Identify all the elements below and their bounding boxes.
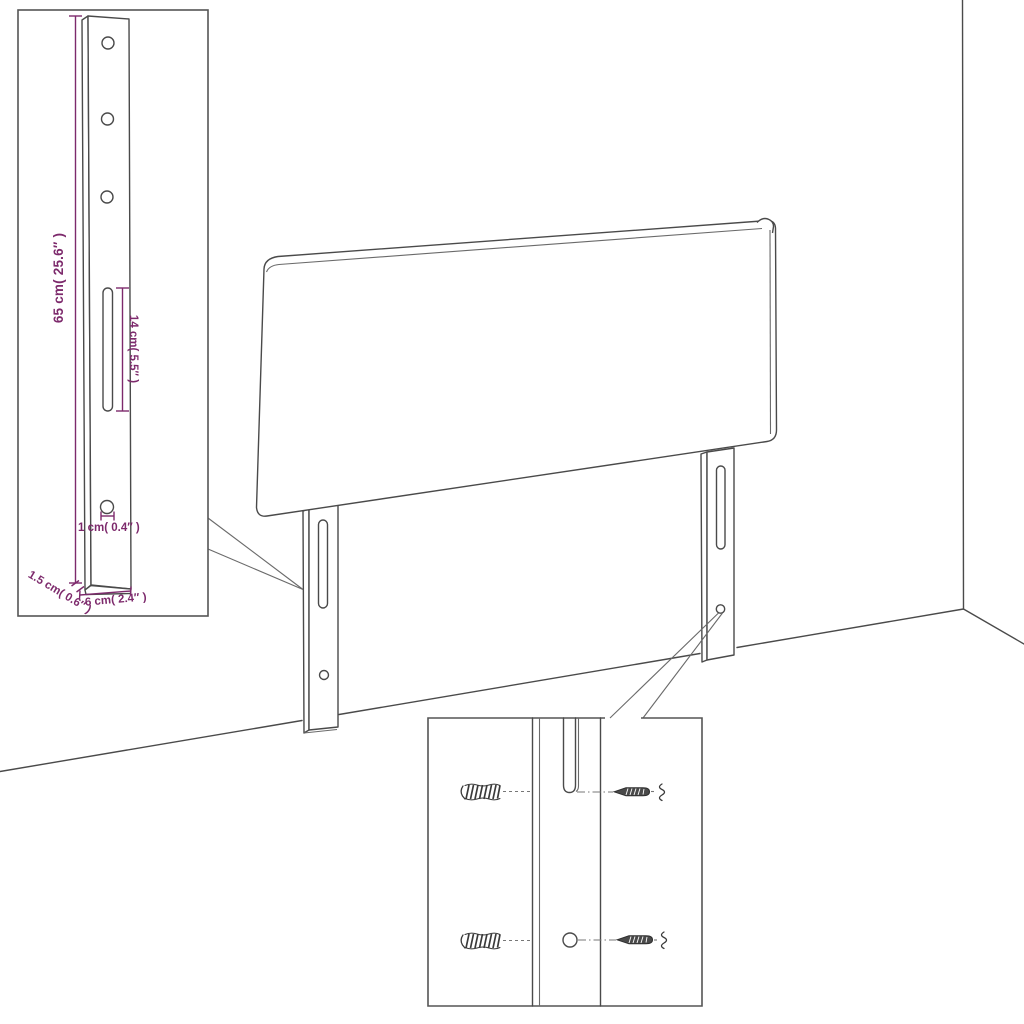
headboard-right-inner-edge: [770, 230, 771, 434]
strip-slot: [564, 718, 576, 793]
screw-icon: [614, 788, 650, 796]
detail-box-hardware: [428, 718, 702, 1006]
headboard-leg-right: [701, 448, 734, 662]
dim-thickness-label: 1.5 cm( 0.6″ ): [26, 569, 93, 616]
headboard-panel-outline: [257, 221, 777, 517]
floor-line-right: [964, 609, 1024, 644]
callout-lines-left-detail: [208, 518, 303, 590]
spring-squiggle-icon: [662, 932, 667, 949]
headboard-assembly-diagram: 65 cm( 25.6″ ) 14 cm( 5.5″ ) 1 cm( 0.4″ …: [0, 0, 1024, 1024]
alignment-dashes: [503, 792, 660, 941]
bracket-hole-1: [102, 37, 114, 49]
leg-left-slot: [319, 520, 328, 608]
floor-line-left: [0, 609, 964, 772]
diagram-canvas: 65 cm( 25.6″ ) 14 cm( 5.5″ ) 1 cm( 0.4″ …: [0, 0, 1024, 1024]
leg-left-hole: [320, 671, 329, 680]
leg-left-side-face: [303, 509, 309, 733]
strip-slot-inner-edge: [576, 718, 579, 792]
bracket-bottom-hole: [101, 501, 114, 514]
detail-box-leg-dimensions: 65 cm( 25.6″ ) 14 cm( 5.5″ ) 1 cm( 0.4″ …: [18, 10, 208, 616]
bracket-hole-3: [101, 191, 113, 203]
dim-height-label: 65 cm( 25.6″ ): [51, 233, 66, 323]
dim-hole-label: 1 cm( 0.4″ ): [78, 522, 140, 534]
leg-right-slot: [717, 466, 726, 549]
detail-box-hardware-border: [428, 718, 702, 1006]
mounting-strip: [533, 718, 601, 1006]
spring-squiggle-icon: [660, 784, 665, 801]
bracket-slot: [103, 288, 113, 411]
headboard-panel: [257, 219, 777, 517]
headboard-leg-left: [303, 505, 338, 733]
wall-corner-line: [963, 0, 964, 609]
screw-icon: [617, 936, 653, 944]
wall-plug-icon: [461, 933, 500, 949]
dim-slot-label: 14 cm( 5.5″ ): [127, 315, 139, 383]
dim-height: 65 cm( 25.6″ ): [51, 16, 82, 583]
leg-right-side-face: [701, 452, 707, 662]
wall-plug-icon: [461, 784, 500, 800]
dim-thickness: 1.5 cm( 0.6″ ): [26, 569, 93, 616]
strip-hole: [563, 933, 577, 947]
bracket-hole-2: [102, 113, 114, 125]
mounting-leg-bracket: [82, 16, 131, 595]
leg-right-hole: [716, 605, 724, 613]
